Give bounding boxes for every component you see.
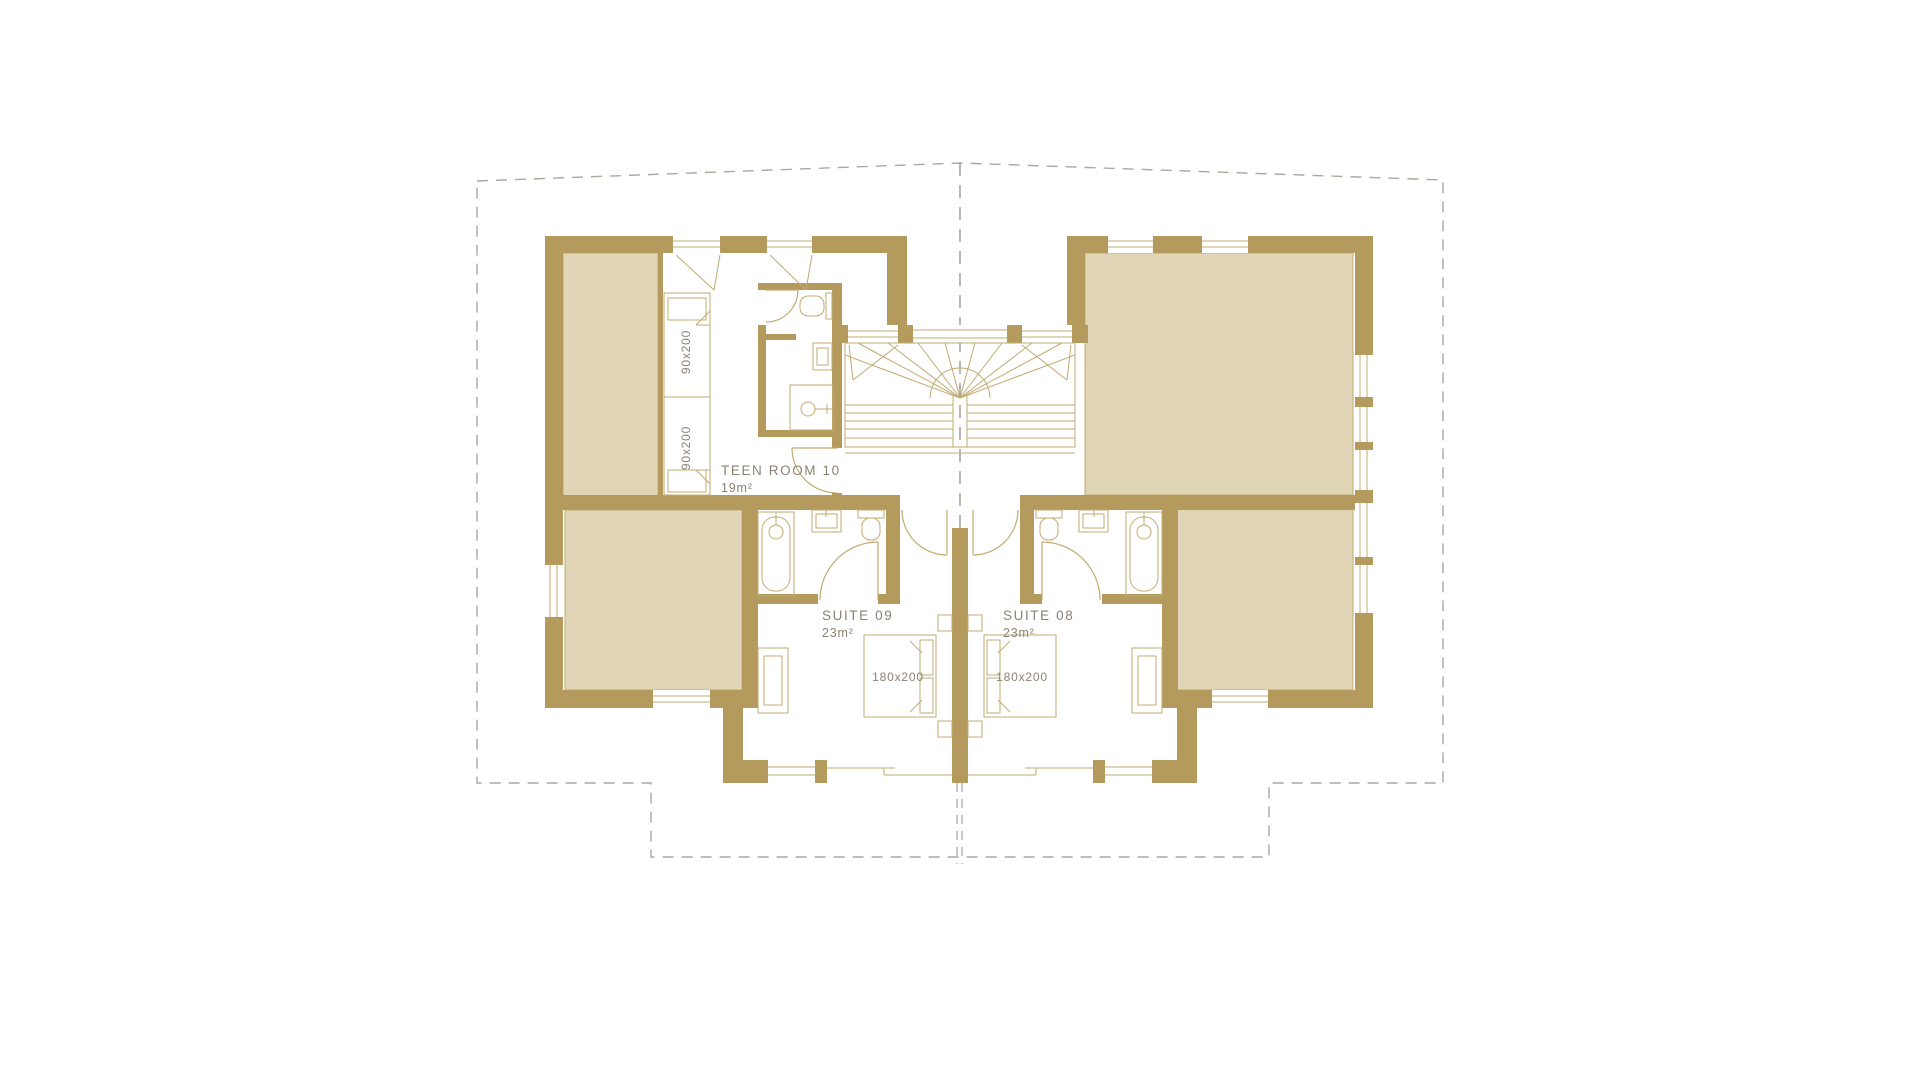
window-right-top-1 (1108, 236, 1153, 253)
window-teen-1 (673, 236, 720, 290)
label-teen-room: TEEN ROOM 10 (721, 463, 841, 478)
label-bed-teen-1: 90x200 (679, 330, 693, 374)
door-suite08-bath (1042, 542, 1100, 600)
window-left-wing-bottom (653, 690, 710, 708)
window-teen-2 (767, 236, 812, 290)
label-teen-room-area: 19m² (721, 481, 753, 495)
label-suite08: SUITE 08 (1003, 608, 1074, 623)
bathtub-suite09 (758, 512, 794, 596)
label-suite09-area: 23m² (822, 626, 854, 640)
window-left-wall (545, 565, 563, 617)
teen-bathroom-fixtures (790, 293, 833, 430)
window-suite08-bottom (1105, 760, 1152, 783)
wardrobe-suite09 (758, 648, 788, 713)
toilet-teen (800, 293, 832, 319)
label-bed-teen-2: 90x200 (679, 426, 693, 470)
window-right-top-2 (1202, 236, 1248, 253)
door-suite09-bath (820, 542, 878, 600)
door-suite08 (973, 510, 1018, 555)
label-suite09: SUITE 09 (822, 608, 893, 623)
windows-right-wall (1355, 355, 1373, 613)
suite08-fixtures (968, 510, 1162, 737)
shower-teen (790, 385, 833, 430)
sink-suite08 (1079, 510, 1108, 532)
room-upper-left (563, 253, 658, 497)
wardrobe-suite08 (1132, 648, 1162, 713)
label-bed-suite09: 180x200 (872, 670, 924, 684)
toilet-suite08 (1036, 510, 1062, 540)
window-right-wing-bottom (1212, 690, 1268, 708)
toilet-suite09 (858, 510, 884, 540)
floor-plan-svg: TEEN ROOM 10 19m² SUITE 09 23m² SUITE 08… (0, 0, 1920, 1080)
room-upper-right (1085, 253, 1353, 495)
door-teen-bath (766, 290, 798, 322)
room-lower-right (1177, 505, 1353, 690)
label-suite08-area: 23m² (1003, 626, 1035, 640)
label-bed-suite08: 180x200 (996, 670, 1048, 684)
sliding-door-suite08 (968, 760, 1093, 783)
sink-teen (813, 343, 832, 370)
room-lower-left (565, 510, 742, 690)
suite09-fixtures (758, 510, 952, 737)
window-suite09-bottom (768, 760, 815, 783)
bathtub-suite08 (1126, 512, 1162, 596)
sliding-door-suite09 (827, 760, 952, 783)
door-suite09 (902, 510, 947, 555)
sink-suite09 (812, 510, 841, 532)
window-hall-center (913, 325, 1007, 343)
floor-plan-page: TEEN ROOM 10 19m² SUITE 09 23m² SUITE 08… (0, 0, 1920, 1080)
